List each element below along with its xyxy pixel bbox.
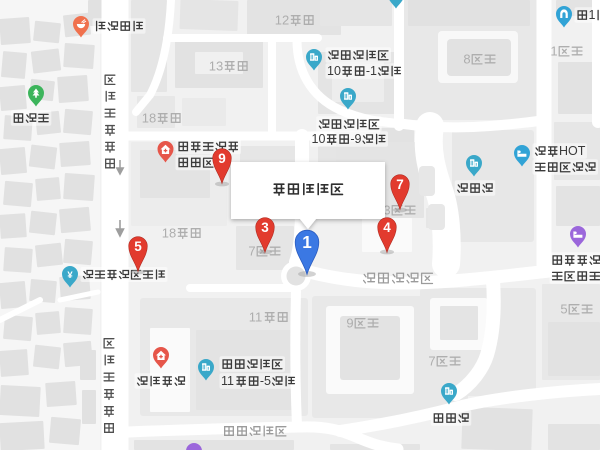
svg-text:11: 11: [249, 309, 262, 324]
svg-text:13: 13: [209, 58, 223, 73]
svg-text:18: 18: [162, 225, 176, 240]
svg-text:7: 7: [396, 177, 404, 192]
svg-text:HOT: HOT: [559, 144, 586, 158]
svg-text:18: 18: [142, 110, 156, 125]
svg-text:7: 7: [248, 243, 255, 258]
svg-text:10: 10: [327, 64, 341, 78]
svg-text:-5: -5: [260, 374, 271, 388]
svg-text:3: 3: [261, 220, 269, 235]
svg-text:11: 11: [221, 374, 234, 388]
svg-text:12: 12: [275, 12, 289, 27]
svg-text:1: 1: [589, 8, 596, 22]
svg-text:7: 7: [428, 353, 435, 368]
svg-text:-1: -1: [366, 64, 377, 78]
svg-text:9: 9: [346, 315, 353, 330]
svg-text:5: 5: [134, 239, 142, 254]
svg-text:¥: ¥: [67, 270, 73, 281]
svg-text:1: 1: [302, 232, 312, 252]
svg-text:5: 5: [560, 301, 567, 316]
svg-text:4: 4: [383, 220, 391, 235]
svg-text:8: 8: [463, 51, 470, 66]
svg-text:9: 9: [218, 151, 226, 166]
svg-text:-9: -9: [350, 132, 361, 146]
svg-text:10: 10: [312, 132, 326, 146]
svg-text:1: 1: [550, 43, 557, 58]
